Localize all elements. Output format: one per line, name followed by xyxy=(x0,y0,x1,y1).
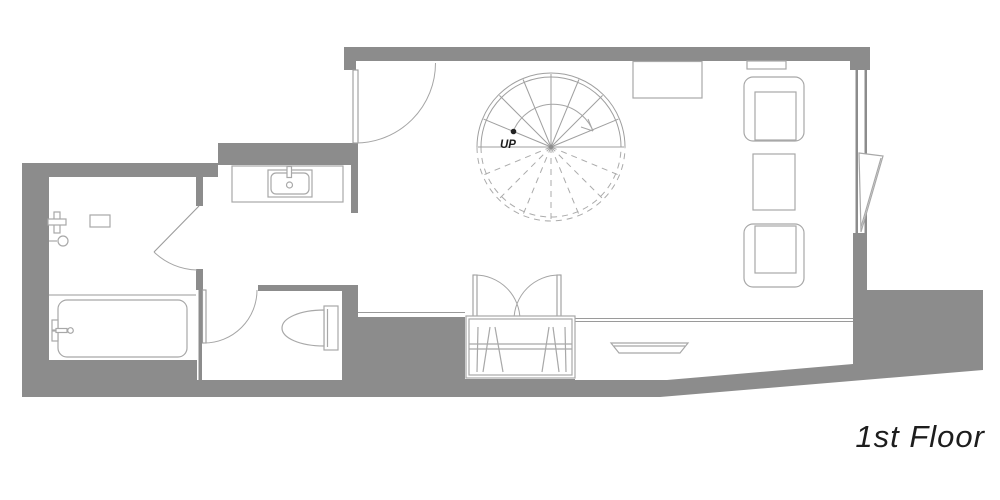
bathroom-door-leaf xyxy=(154,206,199,252)
casement-window xyxy=(859,153,883,232)
entry-door-jamb xyxy=(344,47,356,70)
right-wall-lower xyxy=(853,233,867,290)
spiral-staircase: UP xyxy=(477,73,625,221)
armchair-bottom xyxy=(744,224,804,287)
top-wall xyxy=(344,47,870,61)
paper-holder-roll xyxy=(58,236,68,246)
french-door-right-leaf xyxy=(557,275,561,321)
bathroom-wall-stub-upper xyxy=(196,177,203,206)
french-door-left-leaf xyxy=(473,275,477,321)
up-label: UP xyxy=(500,139,516,151)
floor-plan-drawing: UP xyxy=(0,0,1000,500)
stair-treads-hidden xyxy=(484,147,619,220)
hall-mainroom-wall xyxy=(351,143,358,213)
wall-niche xyxy=(90,215,110,227)
french-doors xyxy=(473,275,561,321)
bathroom-door-swing xyxy=(154,252,197,270)
sink-vanity xyxy=(232,166,343,202)
stair-center-post xyxy=(549,145,553,149)
wc-door xyxy=(203,290,258,343)
shower-valve-horizontal xyxy=(48,219,66,225)
stair-start-dot xyxy=(511,129,517,135)
toilet-tank xyxy=(324,306,338,350)
tub-spout xyxy=(56,329,67,333)
bathroom-door xyxy=(154,206,199,270)
wc-top-wall xyxy=(258,285,342,291)
toilet-bowl xyxy=(282,310,324,346)
bathroom-wall-stub-lower xyxy=(196,269,203,290)
desk xyxy=(633,62,702,99)
wc-door-leaf xyxy=(203,290,207,343)
bathroom-wc-divider xyxy=(199,290,203,380)
floor-plan-canvas: UP xyxy=(0,0,1000,500)
french-door-right-swing xyxy=(514,275,559,320)
stair-treads xyxy=(478,74,624,147)
bottom-left-wall xyxy=(22,360,197,397)
entry-door-leaf xyxy=(353,70,358,143)
below-bench-wall xyxy=(465,379,575,397)
floor-tray xyxy=(611,343,688,353)
armchair-bottom-cushion xyxy=(755,226,796,273)
vanity-top-wall xyxy=(218,143,358,165)
stair-direction-arrow-arc xyxy=(513,104,593,132)
main-room-furniture xyxy=(611,61,804,353)
bathroom-top-wall xyxy=(22,163,218,177)
wc-door-swing xyxy=(204,290,257,343)
armchair-top-cushion xyxy=(755,92,796,140)
window-jamb-outer xyxy=(856,61,859,233)
coffee-table xyxy=(753,154,795,210)
french-door-left-swing xyxy=(475,275,520,320)
entry-door xyxy=(353,63,436,143)
armchair-top xyxy=(744,77,804,141)
floor-title: 1st Floor xyxy=(855,419,985,454)
sink-faucet xyxy=(287,167,292,178)
bathtub xyxy=(58,300,187,357)
entry-bench xyxy=(466,316,575,378)
mainroom-bottom-left-wall xyxy=(358,317,465,397)
entry-door-swing xyxy=(356,63,436,143)
wc-fixtures xyxy=(282,306,338,350)
wc-bottom-wall xyxy=(197,380,358,397)
bathroom-fixtures xyxy=(48,212,187,357)
wall-shelf xyxy=(747,61,786,69)
